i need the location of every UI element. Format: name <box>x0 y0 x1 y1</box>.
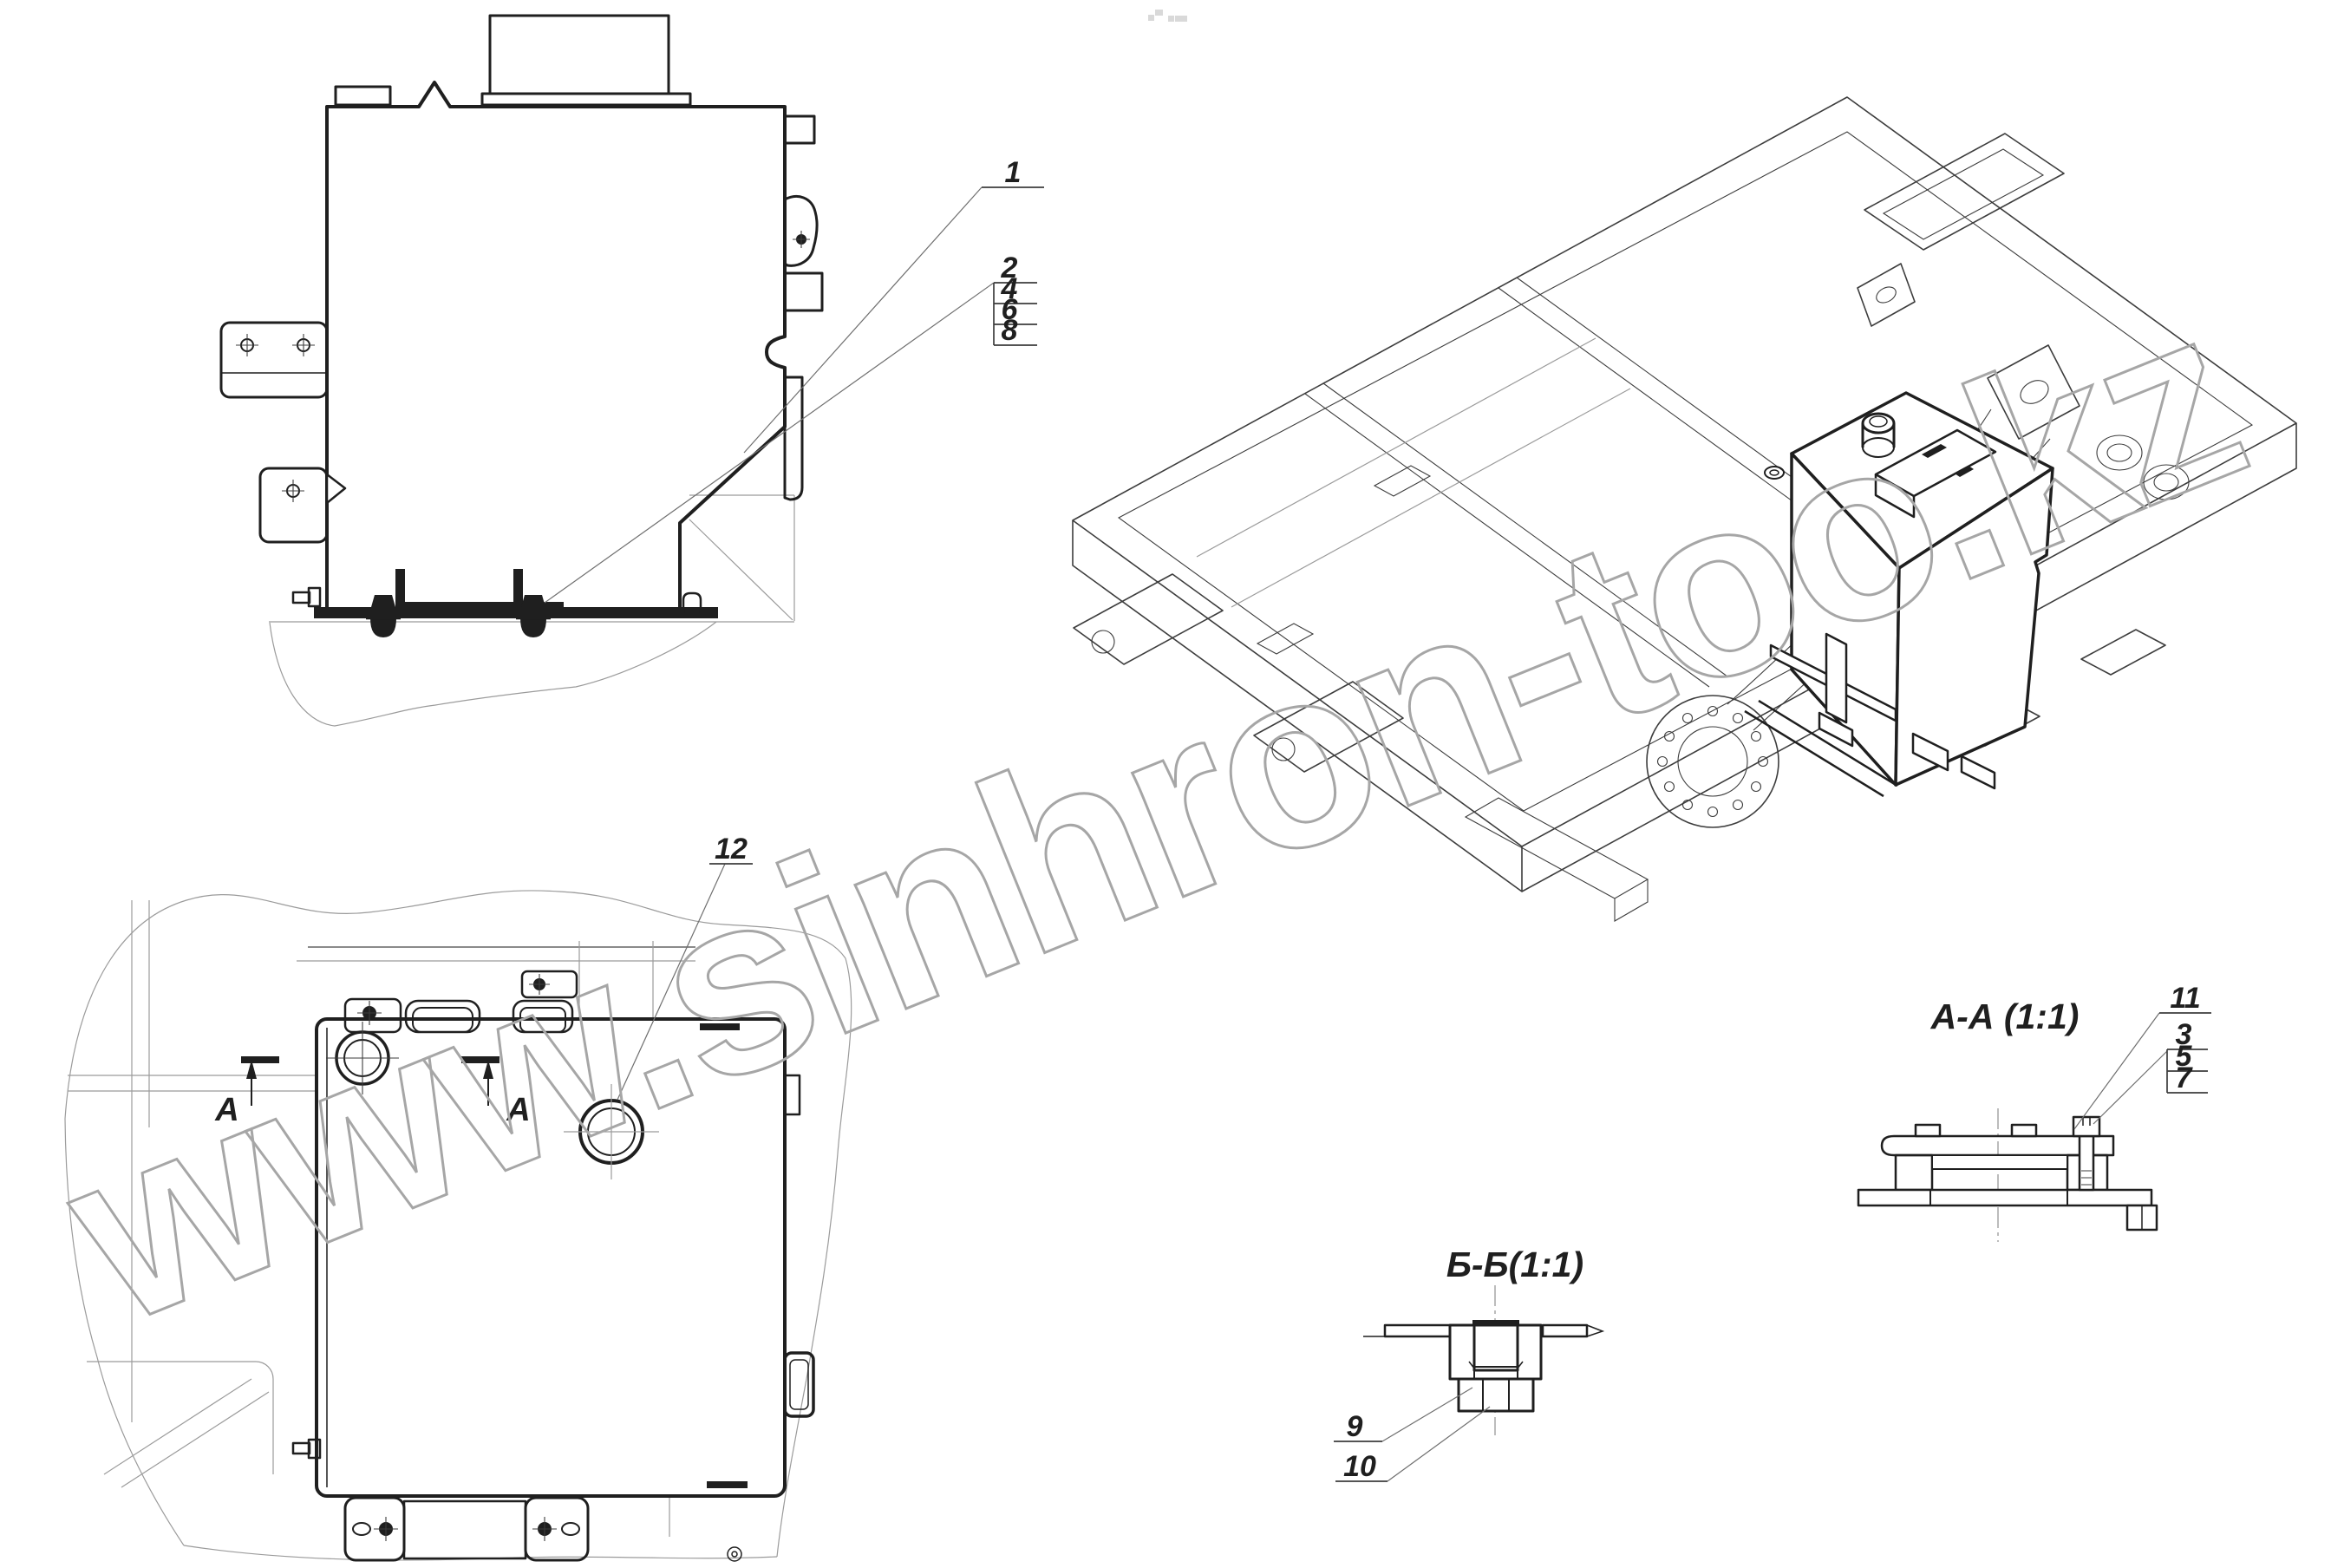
drain-plug-top <box>293 1443 310 1454</box>
mount-bolt <box>520 618 546 637</box>
filler-cap <box>490 16 669 94</box>
print-artifacts <box>1148 10 1187 22</box>
upper-bracket <box>221 323 327 397</box>
foot-plate <box>404 1501 526 1558</box>
floor-plate-section <box>1543 1325 1587 1336</box>
callout-label-7: 7 <box>2176 1062 2194 1094</box>
breather-cap <box>336 87 390 105</box>
drawing-sheet: 1 2 4 6 8 <box>0 0 2331 1568</box>
lifting-lug <box>1858 264 1915 326</box>
watermark-text: www.sinhron-too.kz <box>29 252 2273 1379</box>
section-bb: Б-Б(1:1) 9 10 <box>1334 1245 1603 1483</box>
lower-bracket <box>260 468 327 542</box>
side-bracket <box>785 273 822 310</box>
callout-stack-2-4-6-8: 2 4 6 8 <box>545 252 1037 603</box>
clamp-stud <box>395 569 405 607</box>
section-bb-title: Б-Б(1:1) <box>1446 1245 1583 1284</box>
callout-label-1: 1 <box>1005 156 1022 189</box>
callout-label-10: 10 <box>1343 1450 1376 1483</box>
callout-label-11: 11 <box>2170 982 2200 1015</box>
outlet-pipe <box>785 116 814 143</box>
callout-label-9: 9 <box>1347 1410 1363 1443</box>
drawing-canvas: 1 2 4 6 8 <box>0 0 2331 1568</box>
callout-stack-3-5-7: 3 5 7 <box>2093 1018 2208 1124</box>
clamp-stud <box>513 569 523 607</box>
floor-plate-section <box>1385 1325 1450 1336</box>
section-aa-title: А-А (1:1) <box>1930 996 2080 1036</box>
mount-bolt <box>370 618 396 637</box>
callout-1: 1 <box>744 156 1044 453</box>
mounting-strip <box>785 377 802 500</box>
drain-plug <box>293 592 310 603</box>
tank-foot-iso <box>1962 756 1995 788</box>
tank-outline <box>327 82 785 613</box>
frame-flange-section <box>1858 1190 2151 1205</box>
section-aa: А-А (1:1) 11 <box>1858 982 2211 1242</box>
spacer-section <box>1896 1155 1932 1190</box>
side-view: 1 2 4 6 8 <box>221 16 1044 726</box>
plug-hex-head <box>1459 1379 1533 1411</box>
callout-label-8: 8 <box>1002 314 1018 347</box>
break-line <box>270 622 716 726</box>
